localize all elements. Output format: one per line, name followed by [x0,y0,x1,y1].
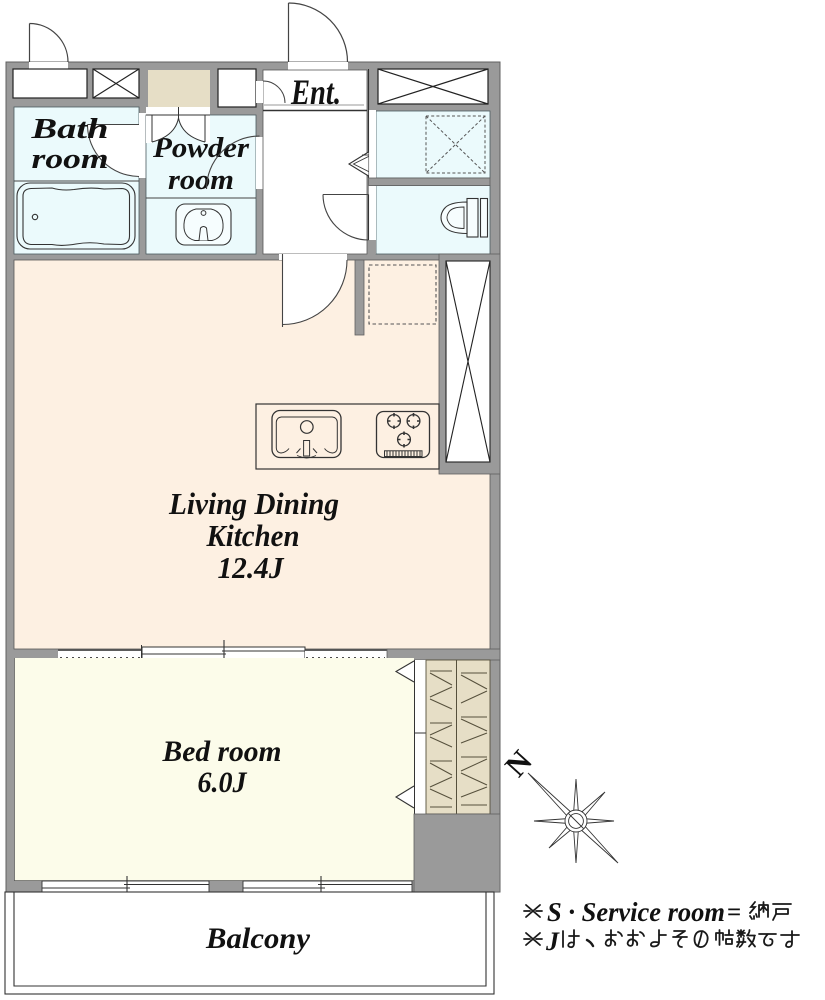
svg-text:=: = [727,899,741,926]
svg-text:Kitchen: Kitchen [206,518,300,553]
svg-text:Bed room: Bed room [162,735,282,768]
svg-text:12.4J: 12.4J [218,550,285,585]
svg-text:S · Service room: S · Service room [547,897,725,927]
svg-text:room: room [168,164,234,196]
svg-text:Bath: Bath [30,113,108,145]
svg-text:Balcony: Balcony [205,922,311,955]
svg-text:room: room [32,143,109,175]
svg-text:Living Dining: Living Dining [168,486,339,521]
svg-text:Ent.: Ent. [290,72,341,112]
svg-text:6.0J: 6.0J [198,766,248,799]
svg-text:J: J [545,927,560,956]
